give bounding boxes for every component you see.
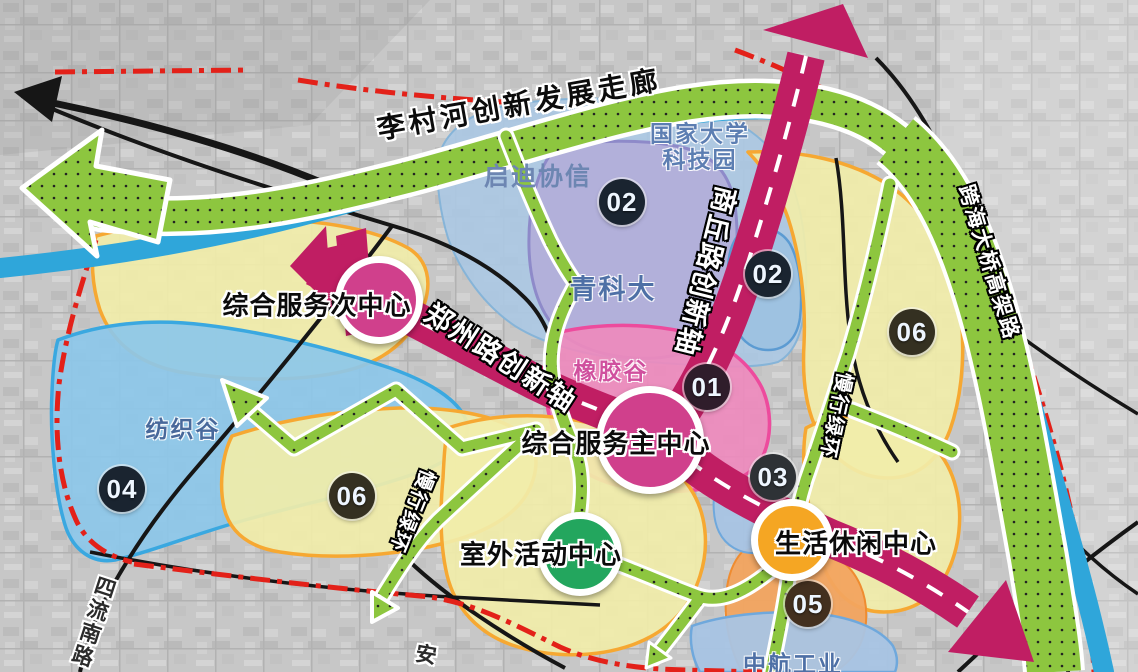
zone-label-zhonghang: 中航工业 [743,645,843,672]
badge-02-b: 02 [745,251,791,297]
zone-label-qidi: 启迪协信 [484,157,592,193]
planning-map: 02 02 06 01 03 04 06 05 李村河创新发展走廊 商丘路创新轴… [0,0,1138,672]
badge-05: 05 [785,581,831,627]
sub-center-label: 综合服务次中心 [222,286,411,323]
badge-06-a: 06 [889,309,935,355]
zone-label-guojia: 国家大学 科技园 [650,121,750,174]
zone-label-xiangjiao: 橡胶谷 [574,352,649,386]
road-label-anshun: 安 [407,641,441,670]
badge-01: 01 [684,364,730,410]
badge-03: 03 [750,454,796,500]
main-center-label: 综合服务主中心 [521,424,710,461]
life-center-label: 生活休闲中心 [775,524,937,561]
badge-02-a: 02 [599,179,645,225]
zone-label-qingkeda: 青科大 [570,268,657,307]
badge-04: 04 [99,466,145,512]
zone-label-fangzhi: 纺织谷 [146,410,221,444]
outdoor-center-label: 室外活动中心 [460,535,622,572]
badge-06-b: 06 [329,473,375,519]
